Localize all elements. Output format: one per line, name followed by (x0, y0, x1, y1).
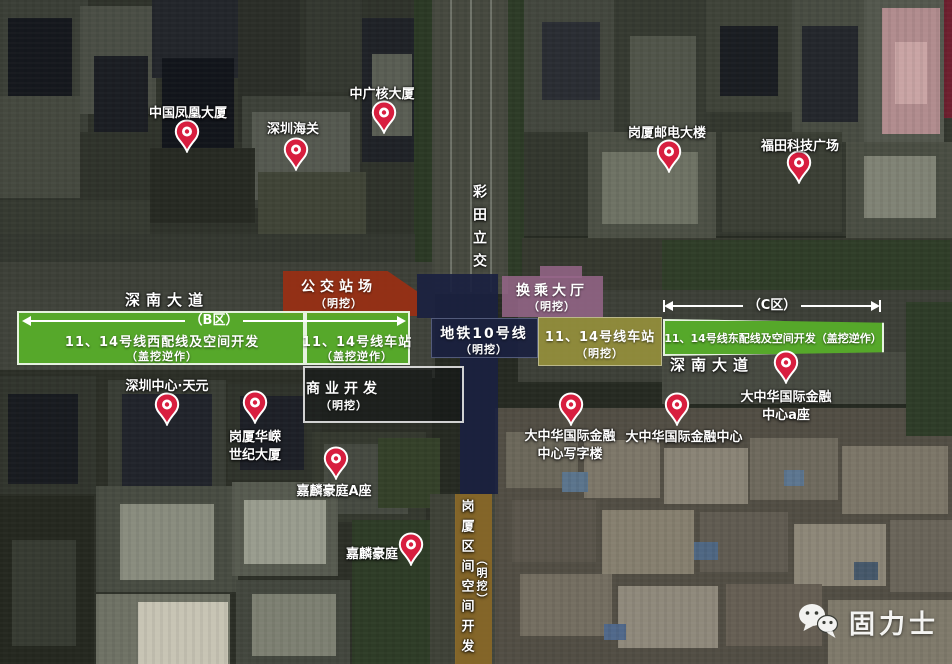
building-label: 大中华国际金融中心 (625, 429, 742, 447)
zone-b-extent-arrow-label: （B区） (185, 314, 244, 328)
satellite-block (630, 36, 696, 128)
satellite-block (784, 470, 804, 486)
satellite-block (244, 500, 326, 564)
location-pin (773, 350, 799, 384)
location-pin (242, 390, 268, 424)
west-dev-zone-label: （盖挖逆作） (126, 348, 198, 364)
map-pin-icon (398, 532, 424, 566)
satellite-block (562, 472, 588, 492)
satellite-block (150, 148, 255, 223)
satellite-block (258, 172, 366, 234)
satellite-block (750, 438, 838, 500)
road-name-label: 深南大道 (125, 289, 209, 310)
building-label: 中广核大厦 (349, 86, 414, 104)
map-pin-icon (558, 392, 584, 426)
bus-depot-zone-label: 公交站场 (301, 276, 377, 296)
satellite-block (450, 0, 452, 292)
satellite-block (252, 594, 336, 656)
location-pin (558, 392, 584, 426)
map-pin-icon (154, 392, 180, 426)
location-pin (656, 139, 682, 173)
satellite-block (602, 510, 694, 574)
satellite-block (542, 22, 600, 100)
east-dev-zone-label: 11、14号线东配线及空间开发（盖挖逆作） (664, 330, 882, 346)
satellite-block (944, 0, 952, 118)
building-label: 嘉麟豪庭A座 (296, 483, 371, 501)
satellite-block (618, 586, 718, 648)
satellite-block (895, 42, 927, 104)
satellite-block (94, 56, 148, 132)
satellite-block (802, 26, 858, 122)
satellite-block (854, 562, 878, 580)
satellite-block (864, 156, 936, 218)
zone-c-extent-arrow: （C区） (664, 299, 880, 313)
zone-c-extent-arrow-label: （C区） (743, 299, 802, 313)
east-station-zone-label: 11、14号线车站 (545, 326, 655, 345)
brand-logo-text: 固力士 (849, 604, 939, 641)
satellite-block (12, 540, 76, 646)
building-label: 大中华国际金融中心a座 (740, 389, 831, 425)
location-pin (398, 532, 424, 566)
satellite-block (720, 26, 778, 96)
vertical-map-label: （明挖） (473, 554, 489, 606)
building-label: 中国凤凰大厦 (149, 105, 227, 123)
satellite-block (120, 504, 214, 580)
building-label: 嘉麟豪庭 (346, 546, 398, 564)
building-label: 深圳海关 (267, 121, 319, 139)
satellite-block (520, 574, 612, 636)
location-pin (371, 100, 397, 134)
arrow-line (801, 305, 871, 307)
arrowhead-left-icon (664, 301, 673, 311)
building-label: 福田科技广场 (761, 138, 839, 156)
arrow-end-tick (879, 300, 881, 312)
satellite-block (138, 602, 228, 664)
map-pin-icon (664, 392, 690, 426)
satellite-block (414, 0, 434, 292)
metro-line10-zone-label: 地铁10号线 (440, 323, 527, 343)
satellite-map: 公交站场（明挖）换乘大厅（明挖）11、14号线西配线及空间开发（盖挖逆作）11、… (0, 0, 952, 664)
map-pin-icon (656, 139, 682, 173)
satellite-block (604, 624, 626, 640)
arrow-end-tick (663, 300, 665, 312)
building-label: 岗厦邮电大楼 (628, 125, 706, 143)
satellite-block (430, 494, 456, 664)
location-pin (283, 137, 309, 171)
map-pin-icon (283, 137, 309, 171)
east-station-zone-label: （明挖） (576, 345, 624, 361)
metro-line10-zone (417, 274, 498, 318)
arrowhead-left-icon (22, 316, 31, 326)
satellite-block (906, 302, 952, 436)
map-pin-icon (242, 390, 268, 424)
satellite-block (490, 0, 492, 292)
zone-b-extent-arrow: （B区） (22, 314, 406, 328)
satellite-block (512, 500, 596, 562)
metro-line10-zone (460, 358, 498, 494)
commercial-dev-zone-label: （明挖） (320, 397, 368, 413)
arrow-line (673, 305, 743, 307)
commercial-dev-zone-label: 商业开发 (306, 378, 382, 398)
map-pin-icon (174, 119, 200, 153)
satellite-block (890, 520, 952, 592)
arrow-line (243, 320, 397, 322)
location-pin (323, 446, 349, 480)
satellite-block (664, 448, 748, 504)
transfer-hall-zone-label: 换乘大厅 (516, 280, 588, 300)
building-label: 岗厦华嵘世纪大厦 (229, 429, 281, 465)
building-label: 大中华国际金融中心写字楼 (524, 428, 615, 464)
location-pin (154, 392, 180, 426)
map-pin-icon (323, 446, 349, 480)
location-pin (174, 119, 200, 153)
satellite-block (306, 0, 362, 92)
transfer-hall-zone-label: （明挖） (528, 298, 576, 314)
map-pin-icon (371, 100, 397, 134)
arrow-line (31, 320, 185, 322)
vertical-map-label: 彩田立交 (469, 184, 489, 276)
satellite-block (694, 542, 718, 560)
location-pin (664, 392, 690, 426)
satellite-block (0, 96, 80, 198)
arrowhead-right-icon (397, 316, 406, 326)
bus-depot-zone-label: （明挖） (315, 295, 363, 311)
wechat-icon (797, 601, 841, 643)
brand-logo: 固力士 (797, 601, 939, 643)
satellite-block (662, 240, 950, 294)
road-name-label: 深南大道 (670, 354, 754, 375)
satellite-block (842, 446, 948, 514)
metro-line10-zone-label: （明挖） (460, 341, 508, 357)
west-station-zone-label: （盖挖逆作） (321, 348, 393, 364)
building-label: 深圳中心·天元 (126, 378, 209, 396)
satellite-block (602, 152, 698, 224)
satellite-block (8, 394, 78, 484)
map-pin-icon (773, 350, 799, 384)
